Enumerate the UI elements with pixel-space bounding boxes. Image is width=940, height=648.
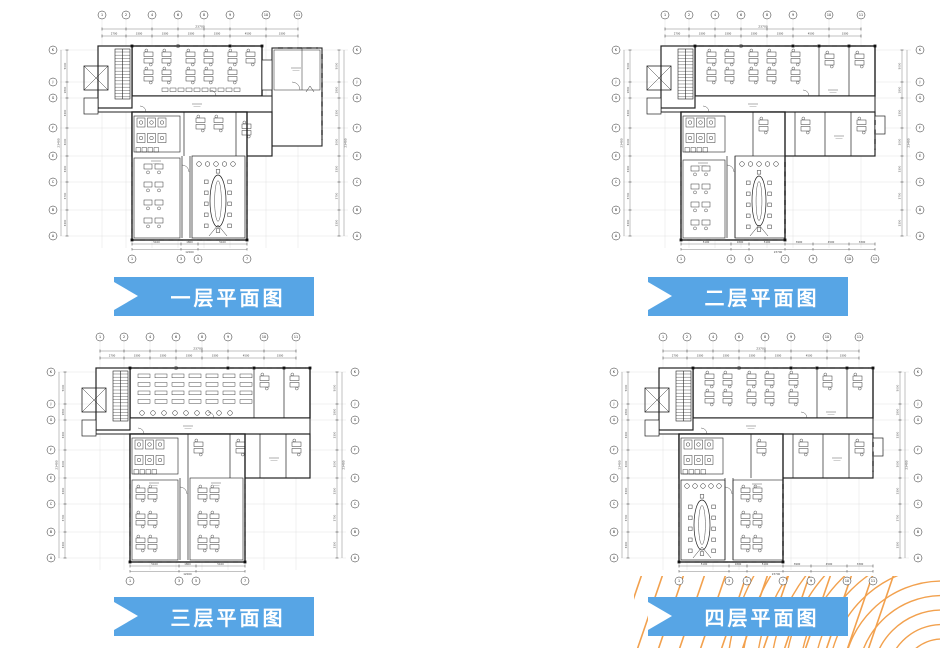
svg-text:8: 8 [764,335,766,339]
svg-text:5: 5 [748,257,750,261]
svg-text:3300: 3300 [624,541,628,548]
svg-text:2700: 2700 [109,354,116,358]
svg-text:F: F [356,126,358,130]
svg-text:3: 3 [180,257,182,261]
svg-text:5: 5 [197,257,199,261]
svg-text:11: 11 [294,335,298,339]
svg-text:3: 3 [730,257,732,261]
svg-text:1800: 1800 [333,408,337,415]
banner-fourth-floor: 四层平面图 [648,597,848,636]
svg-text:3300: 3300 [61,431,65,438]
svg-text:4500: 4500 [828,240,835,244]
svg-text:3300: 3300 [775,354,782,358]
svg-text:E: E [354,476,356,480]
svg-text:3300: 3300 [136,32,143,36]
svg-text:E: E [50,476,52,480]
svg-text:3300: 3300 [898,109,902,116]
svg-text:3900: 3900 [794,562,801,566]
svg-text:J: J [919,80,921,84]
banner-label: 四层平面图 [705,602,820,631]
chevron-notch-icon [114,282,138,310]
svg-text:8: 8 [203,13,205,17]
floor-plan-third: 2370027003300330033003300450033001246891… [38,326,368,588]
svg-text:4500: 4500 [806,354,813,358]
svg-text:3300: 3300 [898,165,902,172]
svg-text:F: F [354,448,356,452]
svg-text:G: G [356,96,359,100]
svg-text:1: 1 [129,579,131,583]
floor-plan-fourth: 2370027003300330033003300450033001246891… [600,326,932,588]
svg-text:F: F [50,448,52,452]
svg-text:3700: 3700 [624,514,628,521]
svg-text:3300: 3300 [335,165,339,172]
svg-text:G: G [52,96,55,100]
svg-text:3300: 3300 [333,431,337,438]
svg-text:23700: 23700 [774,250,783,254]
svg-text:1800: 1800 [624,408,628,415]
svg-text:G: G [917,418,920,422]
svg-text:23400: 23400 [54,460,58,469]
svg-text:5000: 5000 [61,384,65,391]
svg-text:6: 6 [738,335,740,339]
svg-text:3000: 3000 [626,138,630,145]
svg-text:3700: 3700 [333,514,337,521]
svg-text:G: G [919,96,922,100]
svg-text:7: 7 [784,257,786,261]
svg-text:6: 6 [177,13,179,17]
svg-text:10: 10 [262,335,266,339]
svg-text:4: 4 [712,335,714,339]
svg-text:23400: 23400 [619,138,623,147]
chevron-notch-icon [114,602,138,630]
svg-text:10: 10 [827,13,831,17]
svg-text:1800: 1800 [896,408,900,415]
svg-text:E: E [615,154,617,158]
svg-text:3300: 3300 [626,165,630,172]
svg-text:3700: 3700 [61,514,65,521]
svg-text:12000: 12000 [185,250,194,254]
svg-text:J: J [52,80,54,84]
banner-third-floor: 三层平面图 [114,597,314,636]
svg-text:3300: 3300 [279,32,286,36]
svg-text:3300: 3300 [898,219,902,226]
svg-text:G: G [50,418,53,422]
svg-text:5: 5 [746,579,748,583]
svg-text:4: 4 [714,13,716,17]
svg-text:4: 4 [151,13,153,17]
svg-text:3700: 3700 [335,192,339,199]
svg-text:3300: 3300 [624,487,628,494]
svg-text:10: 10 [847,257,851,261]
svg-text:3300: 3300 [749,354,756,358]
svg-text:6: 6 [740,13,742,17]
svg-text:3300: 3300 [186,354,193,358]
svg-text:F: F [615,126,617,130]
svg-text:J: J [354,402,356,406]
svg-text:3300: 3300 [63,165,67,172]
svg-text:9: 9 [229,13,231,17]
svg-text:7: 7 [246,257,248,261]
svg-text:5000: 5000 [626,62,630,69]
svg-text:2700: 2700 [111,32,118,36]
svg-text:9: 9 [810,579,812,583]
floor-plan-first-drawing: 2370027003300330033003300450033001246891… [40,4,370,266]
svg-text:11: 11 [859,13,863,17]
svg-text:5: 5 [195,579,197,583]
floor-plan-fourth-drawing: 2370027003300330033003300450033001246891… [600,326,932,588]
svg-text:4: 4 [149,335,151,339]
svg-text:3300: 3300 [896,487,900,494]
svg-text:4500: 4500 [826,562,833,566]
svg-text:3300: 3300 [626,219,630,226]
svg-text:F: F [919,126,921,130]
svg-text:5000: 5000 [63,62,67,69]
svg-text:3300: 3300 [333,541,337,548]
svg-text:1: 1 [664,13,666,17]
svg-text:3000: 3000 [333,460,337,467]
svg-text:G: G [354,418,357,422]
svg-text:7: 7 [244,579,246,583]
banner-label: 一层平面图 [171,282,286,311]
svg-text:3300: 3300 [842,32,849,36]
svg-text:3300: 3300 [699,32,706,36]
floor-plan-first: 2370027003300330033003300450033001246891… [40,4,370,266]
svg-text:4500: 4500 [808,32,815,36]
svg-text:1: 1 [662,335,664,339]
floor-plan-second-drawing: 2370027003300330033003300450033001246891… [602,4,934,266]
svg-text:11: 11 [873,257,877,261]
svg-text:F: F [52,126,54,130]
svg-text:9: 9 [790,335,792,339]
svg-text:3300: 3300 [277,354,284,358]
svg-text:3: 3 [728,579,730,583]
svg-text:4500: 4500 [243,354,250,358]
svg-text:3: 3 [178,579,180,583]
svg-text:3300: 3300 [63,109,67,116]
svg-text:3000: 3000 [61,460,65,467]
svg-text:1800: 1800 [335,86,339,93]
svg-text:2700: 2700 [674,32,681,36]
svg-text:3300: 3300 [697,354,704,358]
svg-text:E: E [613,476,615,480]
svg-text:J: J [356,80,358,84]
svg-text:E: E [52,154,54,158]
svg-text:3900: 3900 [796,240,803,244]
svg-text:5000: 5000 [335,62,339,69]
svg-text:3300: 3300 [777,32,784,36]
svg-text:1800: 1800 [626,86,630,93]
svg-text:23400: 23400 [905,460,909,469]
svg-text:5000: 5000 [624,384,628,391]
svg-text:J: J [917,402,919,406]
svg-text:23700: 23700 [195,24,205,28]
svg-text:1800: 1800 [898,86,902,93]
svg-text:23700: 23700 [772,572,781,576]
svg-text:2: 2 [125,13,127,17]
banner-first-floor: 一层平面图 [114,277,314,316]
svg-text:E: E [356,154,358,158]
svg-text:3300: 3300 [333,487,337,494]
svg-text:3300: 3300 [162,32,169,36]
svg-text:G: G [613,418,616,422]
svg-text:23700: 23700 [193,346,203,350]
svg-text:3700: 3700 [898,192,902,199]
svg-text:23400: 23400 [342,460,346,469]
svg-text:10: 10 [264,13,268,17]
page: 2370027003300330033003300450033001246891… [0,0,940,648]
svg-text:23400: 23400 [56,138,60,147]
svg-text:11: 11 [871,579,875,583]
svg-text:23400: 23400 [617,460,621,469]
svg-text:1800: 1800 [61,408,65,415]
svg-text:3300: 3300 [626,109,630,116]
svg-text:F: F [917,448,919,452]
svg-text:G: G [615,96,618,100]
svg-text:F: F [613,448,615,452]
svg-text:3300: 3300 [859,240,866,244]
svg-text:3300: 3300 [214,32,221,36]
banner-label: 二层平面图 [705,282,820,311]
svg-text:5000: 5000 [898,62,902,69]
svg-text:6: 6 [175,335,177,339]
svg-text:E: E [917,476,919,480]
svg-text:3300: 3300 [212,354,219,358]
svg-text:23700: 23700 [756,346,766,350]
svg-text:1: 1 [99,335,101,339]
svg-text:5000: 5000 [896,384,900,391]
chevron-notch-icon [648,602,672,630]
floor-plan-third-drawing: 2370027003300330033003300450033001246891… [38,326,368,588]
svg-text:3300: 3300 [840,354,847,358]
svg-text:3700: 3700 [626,192,630,199]
svg-text:3300: 3300 [725,32,732,36]
svg-text:10: 10 [845,579,849,583]
svg-text:3300: 3300 [134,354,141,358]
svg-text:11: 11 [857,335,861,339]
svg-text:2: 2 [123,335,125,339]
svg-text:1: 1 [680,257,682,261]
svg-text:2: 2 [686,335,688,339]
svg-text:J: J [615,80,617,84]
svg-text:1: 1 [131,257,133,261]
svg-text:11: 11 [296,13,300,17]
svg-text:3000: 3000 [896,460,900,467]
svg-text:9: 9 [227,335,229,339]
svg-text:3300: 3300 [61,487,65,494]
svg-text:7: 7 [782,579,784,583]
svg-text:3300: 3300 [723,354,730,358]
svg-text:3000: 3000 [335,138,339,145]
svg-text:3300: 3300 [160,354,167,358]
svg-text:3300: 3300 [857,562,864,566]
svg-text:23700: 23700 [758,24,768,28]
svg-text:9: 9 [812,257,814,261]
svg-text:10: 10 [825,335,829,339]
svg-text:3300: 3300 [188,32,195,36]
svg-text:3300: 3300 [61,541,65,548]
svg-text:3300: 3300 [624,431,628,438]
svg-text:2: 2 [688,13,690,17]
svg-text:3300: 3300 [896,431,900,438]
svg-text:J: J [50,402,52,406]
svg-text:3000: 3000 [63,138,67,145]
svg-text:1: 1 [678,579,680,583]
svg-text:4500: 4500 [245,32,252,36]
svg-text:1: 1 [101,13,103,17]
svg-text:1800: 1800 [63,86,67,93]
svg-text:23400: 23400 [344,138,348,147]
svg-text:3300: 3300 [896,541,900,548]
svg-text:3700: 3700 [63,192,67,199]
svg-text:23400: 23400 [907,138,911,147]
svg-text:3700: 3700 [896,514,900,521]
svg-text:12000: 12000 [183,572,192,576]
svg-text:E: E [919,154,921,158]
svg-text:3000: 3000 [624,460,628,467]
svg-text:3300: 3300 [63,219,67,226]
banner-label: 三层平面图 [171,602,286,631]
svg-text:8: 8 [201,335,203,339]
svg-text:5000: 5000 [333,384,337,391]
svg-text:J: J [613,402,615,406]
chevron-notch-icon [648,282,672,310]
svg-text:2700: 2700 [672,354,679,358]
svg-text:9: 9 [792,13,794,17]
svg-text:3300: 3300 [335,219,339,226]
banner-second-floor: 二层平面图 [648,277,848,316]
svg-text:3300: 3300 [751,32,758,36]
svg-text:8: 8 [766,13,768,17]
floor-plan-second: 2370027003300330033003300450033001246891… [602,4,934,266]
svg-text:3000: 3000 [898,138,902,145]
svg-text:3300: 3300 [335,109,339,116]
